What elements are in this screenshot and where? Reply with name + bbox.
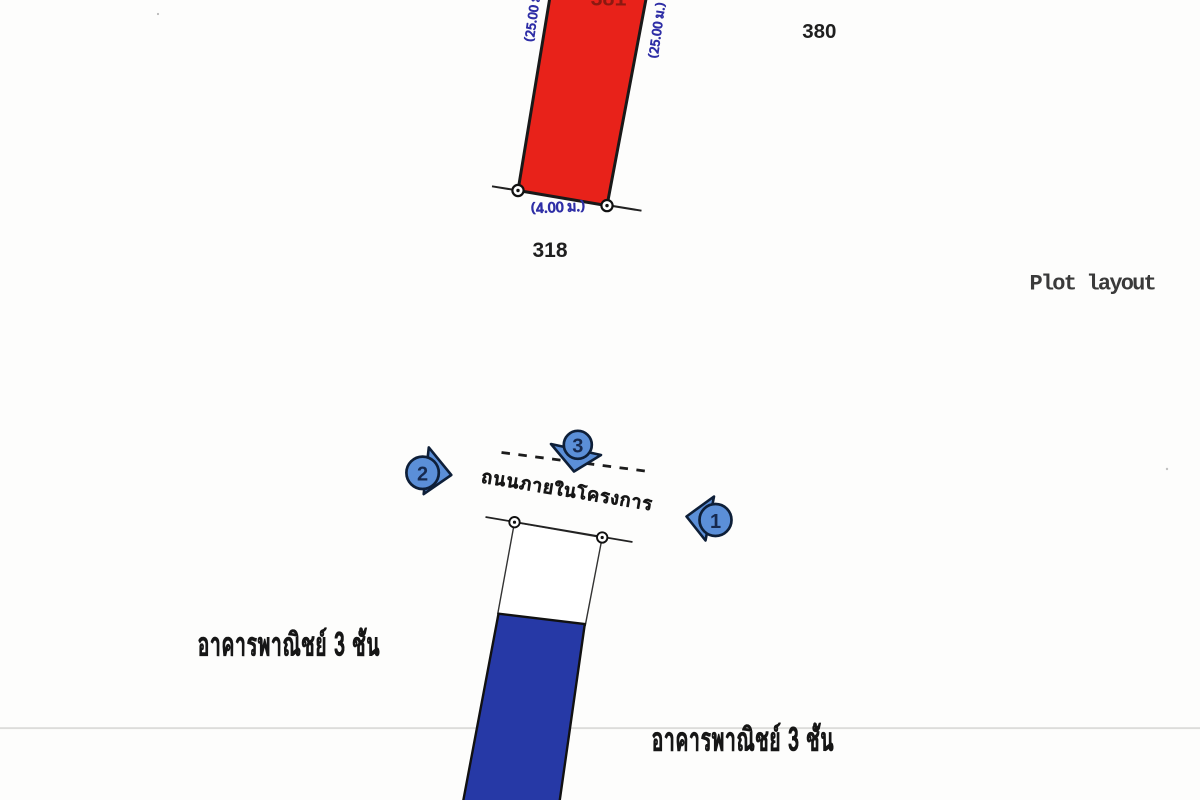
svg-text:380: 380 bbox=[802, 20, 836, 43]
svg-text:Plot layout: Plot layout bbox=[1030, 272, 1156, 297]
svg-text:2: 2 bbox=[417, 464, 428, 486]
svg-text:381: 381 bbox=[591, 0, 627, 11]
svg-text:1: 1 bbox=[710, 511, 721, 533]
svg-text:318: 318 bbox=[532, 239, 567, 262]
svg-text:3: 3 bbox=[572, 436, 583, 458]
